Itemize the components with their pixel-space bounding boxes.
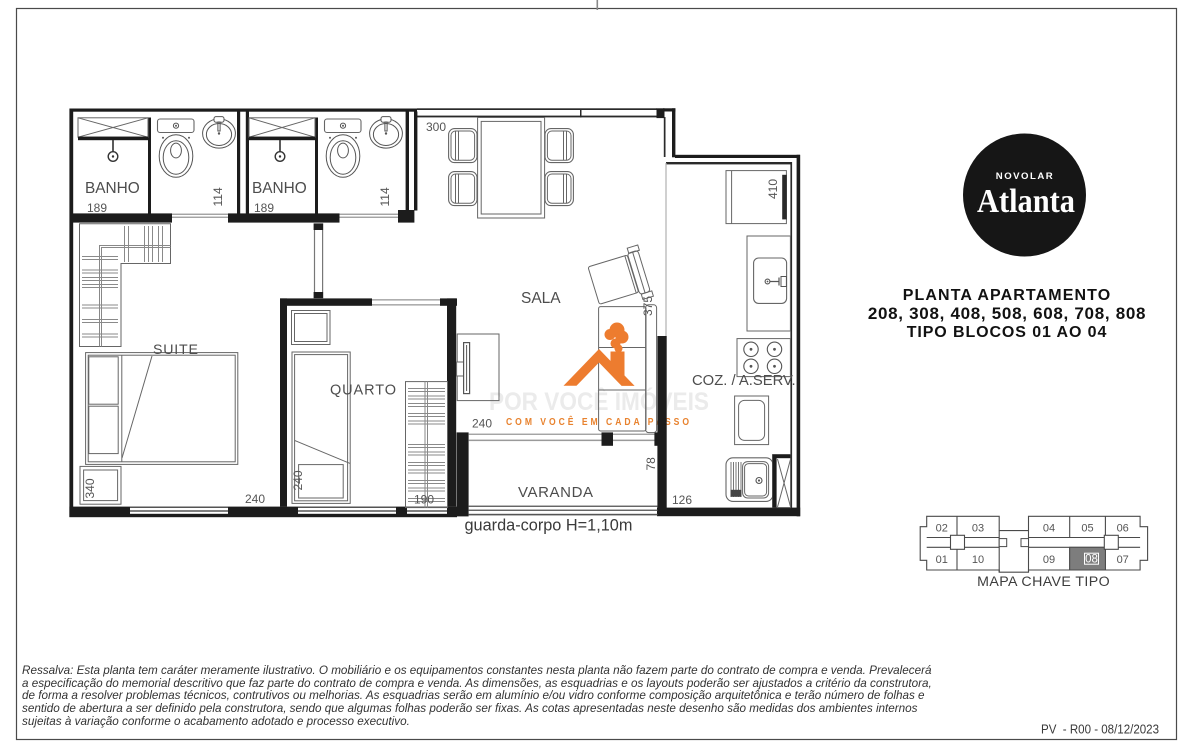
svg-text:189: 189 — [87, 201, 107, 215]
svg-text:208, 308, 408, 508, 608, 708,: 208, 308, 408, 508, 608, 708, 808 — [868, 304, 1146, 323]
svg-text:410: 410 — [766, 179, 780, 199]
svg-text:114: 114 — [211, 187, 225, 206]
svg-text:SALA: SALA — [521, 290, 561, 307]
svg-text:COZ. / A.SERV.: COZ. / A.SERV. — [692, 373, 796, 389]
svg-text:PLANTA APARTAMENTO: PLANTA APARTAMENTO — [903, 287, 1112, 304]
svg-text:240: 240 — [472, 417, 492, 431]
svg-text:NOVOLAR: NOVOLAR — [996, 171, 1054, 182]
svg-text:VARANDA: VARANDA — [518, 484, 594, 501]
svg-text:01: 01 — [936, 554, 948, 566]
svg-text:09: 09 — [1043, 554, 1055, 566]
svg-text:de forma a resolver problemas: de forma a resolver problemas técnicos, … — [22, 689, 925, 702]
svg-text:375: 375 — [641, 296, 655, 316]
svg-text:sentido de abertura a ser defi: sentido de abertura a ser definido pela … — [22, 702, 918, 715]
svg-text:240: 240 — [245, 492, 265, 506]
svg-text:10: 10 — [972, 554, 984, 566]
svg-text:03: 03 — [972, 523, 984, 535]
svg-text:BANHO: BANHO — [252, 180, 307, 197]
svg-text:02: 02 — [936, 523, 948, 535]
svg-text:MAPA CHAVE TIPO: MAPA CHAVE TIPO — [977, 574, 1110, 590]
svg-text:PV - R00 - 08/12/2023: PV - R00 - 08/12/2023 — [1041, 722, 1159, 737]
svg-text:QUARTO: QUARTO — [330, 383, 397, 399]
svg-text:sujeitas à variação conforme o: sujeitas à variação conforme o acabament… — [22, 715, 410, 728]
svg-text:340: 340 — [83, 478, 97, 498]
svg-text:Ressalva: Esta planta tem cará: Ressalva: Esta planta tem caráter merame… — [22, 664, 932, 677]
svg-text:SUITE: SUITE — [153, 342, 199, 358]
svg-text:300: 300 — [426, 120, 446, 134]
svg-text:240: 240 — [291, 470, 305, 490]
svg-text:04: 04 — [1043, 523, 1055, 535]
svg-text:Atlanta: Atlanta — [977, 183, 1075, 220]
svg-text:06: 06 — [1117, 523, 1129, 535]
svg-text:114: 114 — [378, 187, 392, 206]
svg-text:07: 07 — [1117, 554, 1129, 566]
svg-text:BANHO: BANHO — [85, 180, 140, 197]
svg-text:guarda-corpo H=1,10m: guarda-corpo H=1,10m — [465, 517, 633, 535]
svg-text:190: 190 — [414, 493, 434, 507]
svg-text:05: 05 — [1081, 523, 1093, 535]
svg-text:189: 189 — [254, 201, 274, 215]
svg-text:TIPO BLOCOS 01 AO 04: TIPO BLOCOS 01 AO 04 — [907, 324, 1108, 341]
svg-text:78: 78 — [644, 457, 658, 471]
svg-text:08: 08 — [1085, 553, 1098, 565]
svg-text:126: 126 — [672, 493, 692, 507]
